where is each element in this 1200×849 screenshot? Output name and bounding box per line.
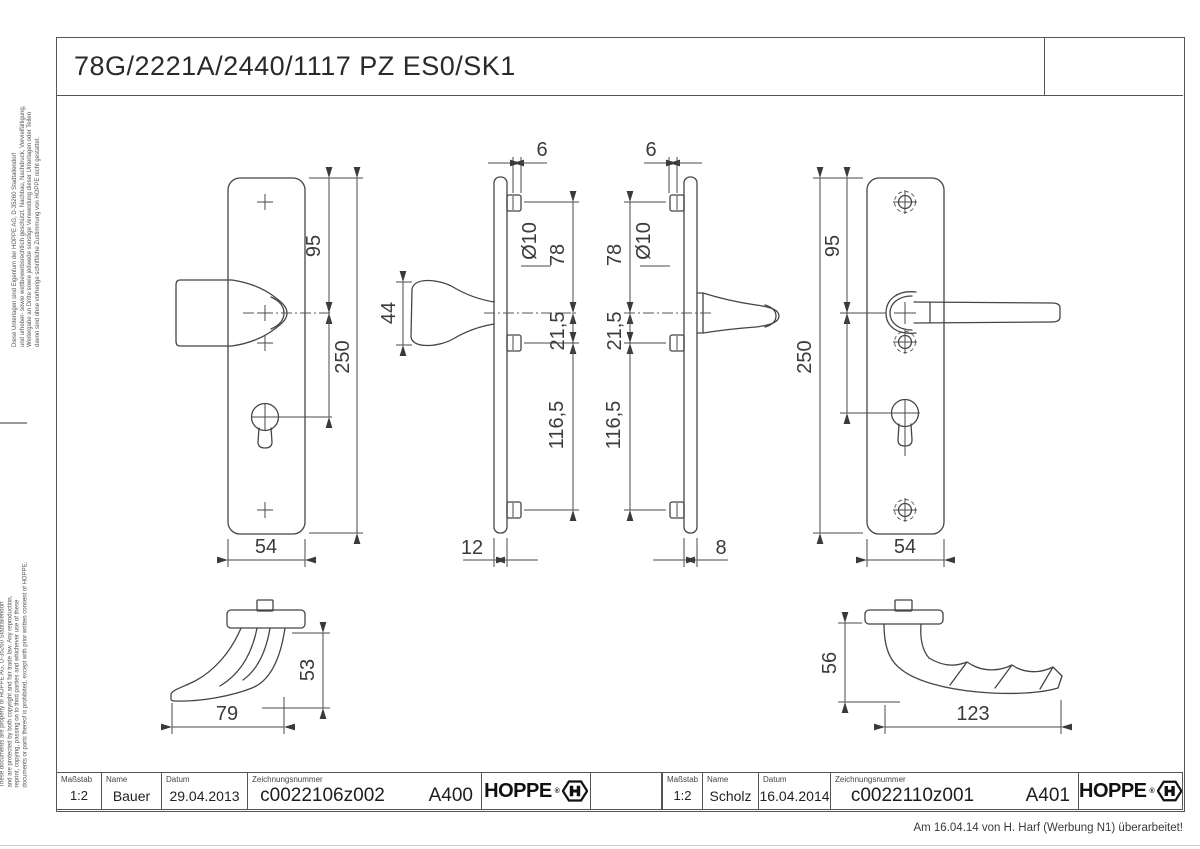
scale-cell: Maßstab 1:2	[663, 773, 703, 809]
drawing-knob-profile: 53 79	[171, 600, 330, 734]
hoppe-hexagon-icon	[1157, 779, 1182, 803]
dim-label: 78	[604, 244, 626, 266]
drawing-area: 95 250 54 6 Ø10	[0, 0, 1200, 849]
drawing-knob-plate-front: 95 250 54	[176, 178, 363, 567]
brand-logo: HOPPE®	[482, 773, 590, 809]
brand-name: HOPPE	[1079, 780, 1147, 803]
name-cell: Name Bauer	[102, 773, 162, 809]
date-value: 16.04.2014	[759, 788, 830, 804]
sheet-number: A401	[1026, 785, 1070, 807]
date-cell: Datum 29.04.2013	[162, 773, 248, 809]
title-block-left: Maßstab 1:2 Name Bauer Datum 29.04.2013 …	[56, 772, 662, 810]
name-label: Name	[106, 775, 127, 784]
dim-label: 250	[332, 340, 354, 373]
name-value: Scholz	[703, 788, 758, 804]
dim-label: 53	[297, 659, 319, 681]
dim-label: 116,5	[546, 401, 568, 450]
sheet-number: A400	[429, 785, 473, 807]
dim-label: 95	[822, 235, 844, 257]
registered-mark: ®	[555, 788, 560, 795]
name-value: Bauer	[102, 788, 161, 804]
date-value: 29.04.2013	[162, 788, 247, 804]
dim-label: 6	[536, 139, 547, 161]
hoppe-hexagon-icon	[562, 779, 588, 803]
brand-logo: HOPPE®	[1079, 773, 1182, 809]
dim-label: 54	[894, 536, 916, 558]
dim-label: 12	[461, 537, 483, 559]
scale-label: Maßstab	[667, 775, 698, 784]
drawing-sheet: Diese Unterlagen sind Eigentum der HOPPE…	[0, 0, 1200, 849]
scale-value: 1:2	[57, 788, 101, 803]
drawing-number-label: Zeichnungsnummer	[252, 775, 323, 784]
dim-label: 44	[378, 302, 400, 324]
dim-label: 78	[547, 244, 569, 266]
dim-label: 79	[216, 703, 238, 725]
dim-label: Ø10	[633, 222, 655, 260]
brand-name: HOPPE	[484, 780, 552, 803]
drawing-lever-plate-side: 6 Ø10 78 21,5 116,5 8	[603, 139, 779, 567]
drawing-number-value: c0022110z001	[831, 785, 994, 807]
dim-label: 250	[794, 340, 816, 373]
screw-hole	[893, 190, 917, 214]
drawing-number-value: c0022106z002	[248, 785, 397, 807]
date-label: Datum	[166, 775, 190, 784]
date-cell: Datum 16.04.2014	[759, 773, 831, 809]
name-cell: Name Scholz	[703, 773, 759, 809]
brand-cell: HOPPE®	[482, 773, 591, 809]
dim-label: 54	[255, 536, 277, 558]
drawing-lever-profile: 56 123	[819, 600, 1062, 734]
dim-label: 21,5	[547, 312, 569, 351]
drawing-number-cell: Zeichnungsnummer c0022106z002 A400	[248, 773, 482, 809]
revision-note: Am 16.04.14 von H. Harf (Werbung N1) übe…	[913, 822, 1183, 834]
drawing-knob-plate-side: 6 Ø10 78 21,5 116,5 44 12	[378, 139, 579, 567]
dim-label: 21,5	[604, 312, 626, 351]
scale-value: 1:2	[663, 788, 702, 803]
scale-cell: Maßstab 1:2	[57, 773, 102, 809]
brand-cell: HOPPE®	[1079, 773, 1182, 809]
registered-mark: ®	[1150, 788, 1155, 795]
screw-hole	[893, 498, 917, 522]
date-label: Datum	[763, 775, 787, 784]
dim-label: 56	[819, 652, 841, 674]
drawing-number-cell: Zeichnungsnummer c0022110z001 A401	[831, 773, 1079, 809]
dim-label: 123	[956, 703, 989, 725]
dim-label: 116,5	[603, 401, 625, 450]
drawing-number-label: Zeichnungsnummer	[835, 775, 906, 784]
dim-label: 95	[303, 235, 325, 257]
title-block-right: Maßstab 1:2 Name Scholz Datum 16.04.2014…	[662, 772, 1183, 810]
name-label: Name	[707, 775, 728, 784]
dim-label: Ø10	[519, 222, 541, 260]
dim-label: 6	[645, 139, 656, 161]
empty-cell	[591, 773, 661, 809]
dim-label: 8	[715, 537, 726, 559]
scale-label: Maßstab	[61, 775, 92, 784]
drawing-lever-plate-front: 95 250 54	[794, 178, 1060, 567]
